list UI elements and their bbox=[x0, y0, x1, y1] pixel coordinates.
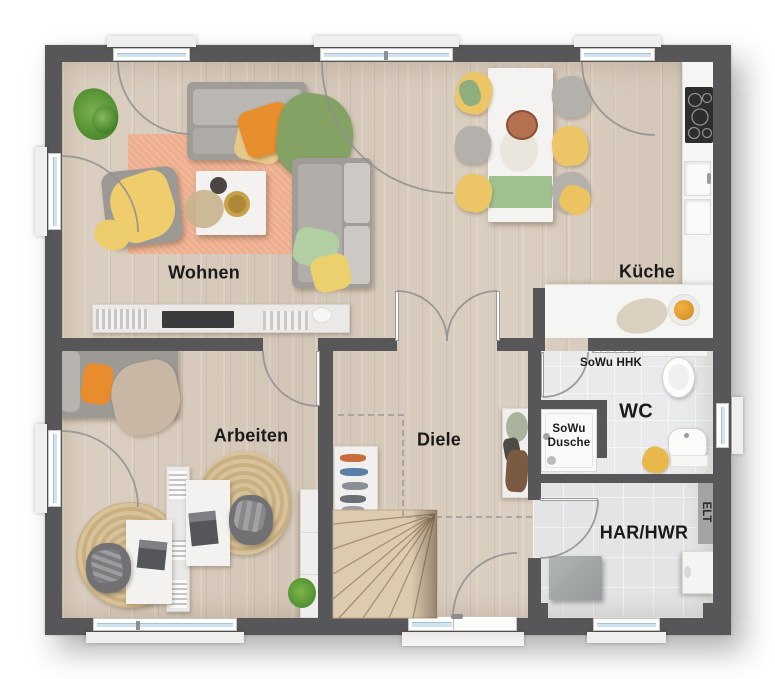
room-label-kueche: Küche bbox=[619, 262, 675, 283]
room-label-diele: Diele bbox=[417, 430, 461, 451]
sofa-right-cushion bbox=[344, 163, 370, 223]
sill-bottom-2 bbox=[587, 632, 666, 643]
interior-wall-wc-har bbox=[540, 474, 713, 483]
sill-top-2 bbox=[314, 36, 459, 47]
sill-bottom-1 bbox=[86, 632, 244, 643]
wall-pilaster-2 bbox=[703, 603, 713, 618]
entrance-door bbox=[408, 616, 517, 631]
plaid-pillow bbox=[233, 499, 268, 534]
gold-bowl-icon bbox=[224, 191, 250, 217]
wc-door-leaf bbox=[541, 352, 544, 397]
vase-icon bbox=[210, 177, 227, 194]
laptop-1-icon bbox=[137, 540, 168, 571]
arbeiten-door-leaf bbox=[316, 351, 320, 406]
sill-right-1 bbox=[732, 397, 743, 454]
shoes-gray bbox=[342, 482, 368, 490]
shoes-blue bbox=[340, 468, 368, 476]
daybed-bolster bbox=[60, 350, 80, 412]
har-door-leaf bbox=[540, 498, 598, 501]
double-door-leaf-left bbox=[395, 291, 399, 341]
annotation-sowu-dusche-line1: SoWu bbox=[548, 423, 591, 437]
shower-drain-icon bbox=[547, 456, 556, 465]
window-left-2 bbox=[48, 430, 61, 507]
window-wc bbox=[716, 403, 729, 448]
tv-icon bbox=[162, 311, 234, 328]
copper-bowl-icon bbox=[506, 110, 538, 140]
annotation-sowu-hhk: SoWu HHK bbox=[580, 357, 642, 369]
room-label-wc: WC bbox=[619, 401, 653, 424]
entrance-step bbox=[402, 632, 524, 646]
interior-wall-wc-top bbox=[588, 338, 713, 351]
table-runner bbox=[489, 176, 552, 208]
sink-basin-2 bbox=[684, 199, 711, 235]
plant-leaf-icon bbox=[92, 106, 118, 134]
wall-pilaster-1 bbox=[538, 603, 548, 618]
room-label-wohnen: Wohnen bbox=[168, 263, 240, 284]
sill-left-1 bbox=[35, 147, 47, 236]
orange-pillow-2 bbox=[79, 362, 114, 406]
interior-wall-wohnen-b bbox=[318, 338, 397, 351]
hanging-bag bbox=[505, 449, 530, 492]
door-sidelight-glass bbox=[412, 622, 452, 627]
floor-plan: Wohnen Küche Arbeiten Diele WC HAR/HWR S… bbox=[0, 0, 775, 679]
dish-icon bbox=[312, 307, 332, 323]
shoes-light bbox=[342, 506, 364, 513]
interior-wall-arbeiten bbox=[318, 351, 333, 618]
sill-left-2 bbox=[35, 424, 47, 513]
window-bottom-2 bbox=[593, 618, 660, 631]
shower-wall-top bbox=[528, 400, 607, 409]
oranges-icon bbox=[674, 300, 694, 320]
washer-drum-icon bbox=[684, 566, 691, 578]
shower-wall-right bbox=[597, 400, 607, 458]
laptop-2-icon bbox=[188, 511, 218, 547]
annotation-sowu-dusche-line2: Dusche bbox=[548, 437, 591, 451]
sill-top-3 bbox=[574, 36, 661, 47]
annotation-sowu-dusche: SoWu Dusche bbox=[548, 423, 591, 451]
window-top-3 bbox=[580, 48, 655, 61]
books-right bbox=[263, 311, 309, 330]
exterior-wall-right bbox=[713, 45, 731, 635]
toilet-seat bbox=[668, 364, 689, 390]
room-label-arbeiten: Arbeiten bbox=[214, 426, 289, 447]
window-top-1 bbox=[113, 48, 190, 61]
window-bottom-1 bbox=[93, 618, 237, 631]
shoes-dark bbox=[340, 495, 366, 503]
basin-mat bbox=[670, 455, 708, 467]
faucet-icon bbox=[707, 173, 711, 184]
small-plant-icon bbox=[288, 578, 316, 608]
door-handle-icon bbox=[451, 614, 463, 619]
double-door-leaf-right bbox=[496, 291, 500, 341]
room-label-har-hwr: HAR/HWR bbox=[600, 523, 688, 544]
striped-pillow bbox=[89, 548, 124, 585]
annotation-elt: ELT bbox=[700, 502, 712, 523]
shelf-books-1 bbox=[169, 471, 187, 499]
interior-wall-wohnen-a bbox=[62, 338, 263, 351]
exterior-wall-left bbox=[45, 62, 62, 635]
cooktop-icon bbox=[685, 87, 713, 143]
appliance-gray bbox=[549, 556, 602, 600]
shoes-orange bbox=[340, 454, 366, 462]
window-top-2 bbox=[320, 48, 453, 61]
basin-faucet-icon bbox=[684, 433, 689, 438]
window-left-1 bbox=[48, 153, 61, 230]
sill-top-1 bbox=[107, 36, 196, 47]
books-left bbox=[96, 309, 148, 329]
interior-wall-kitchen-stub bbox=[533, 288, 545, 351]
